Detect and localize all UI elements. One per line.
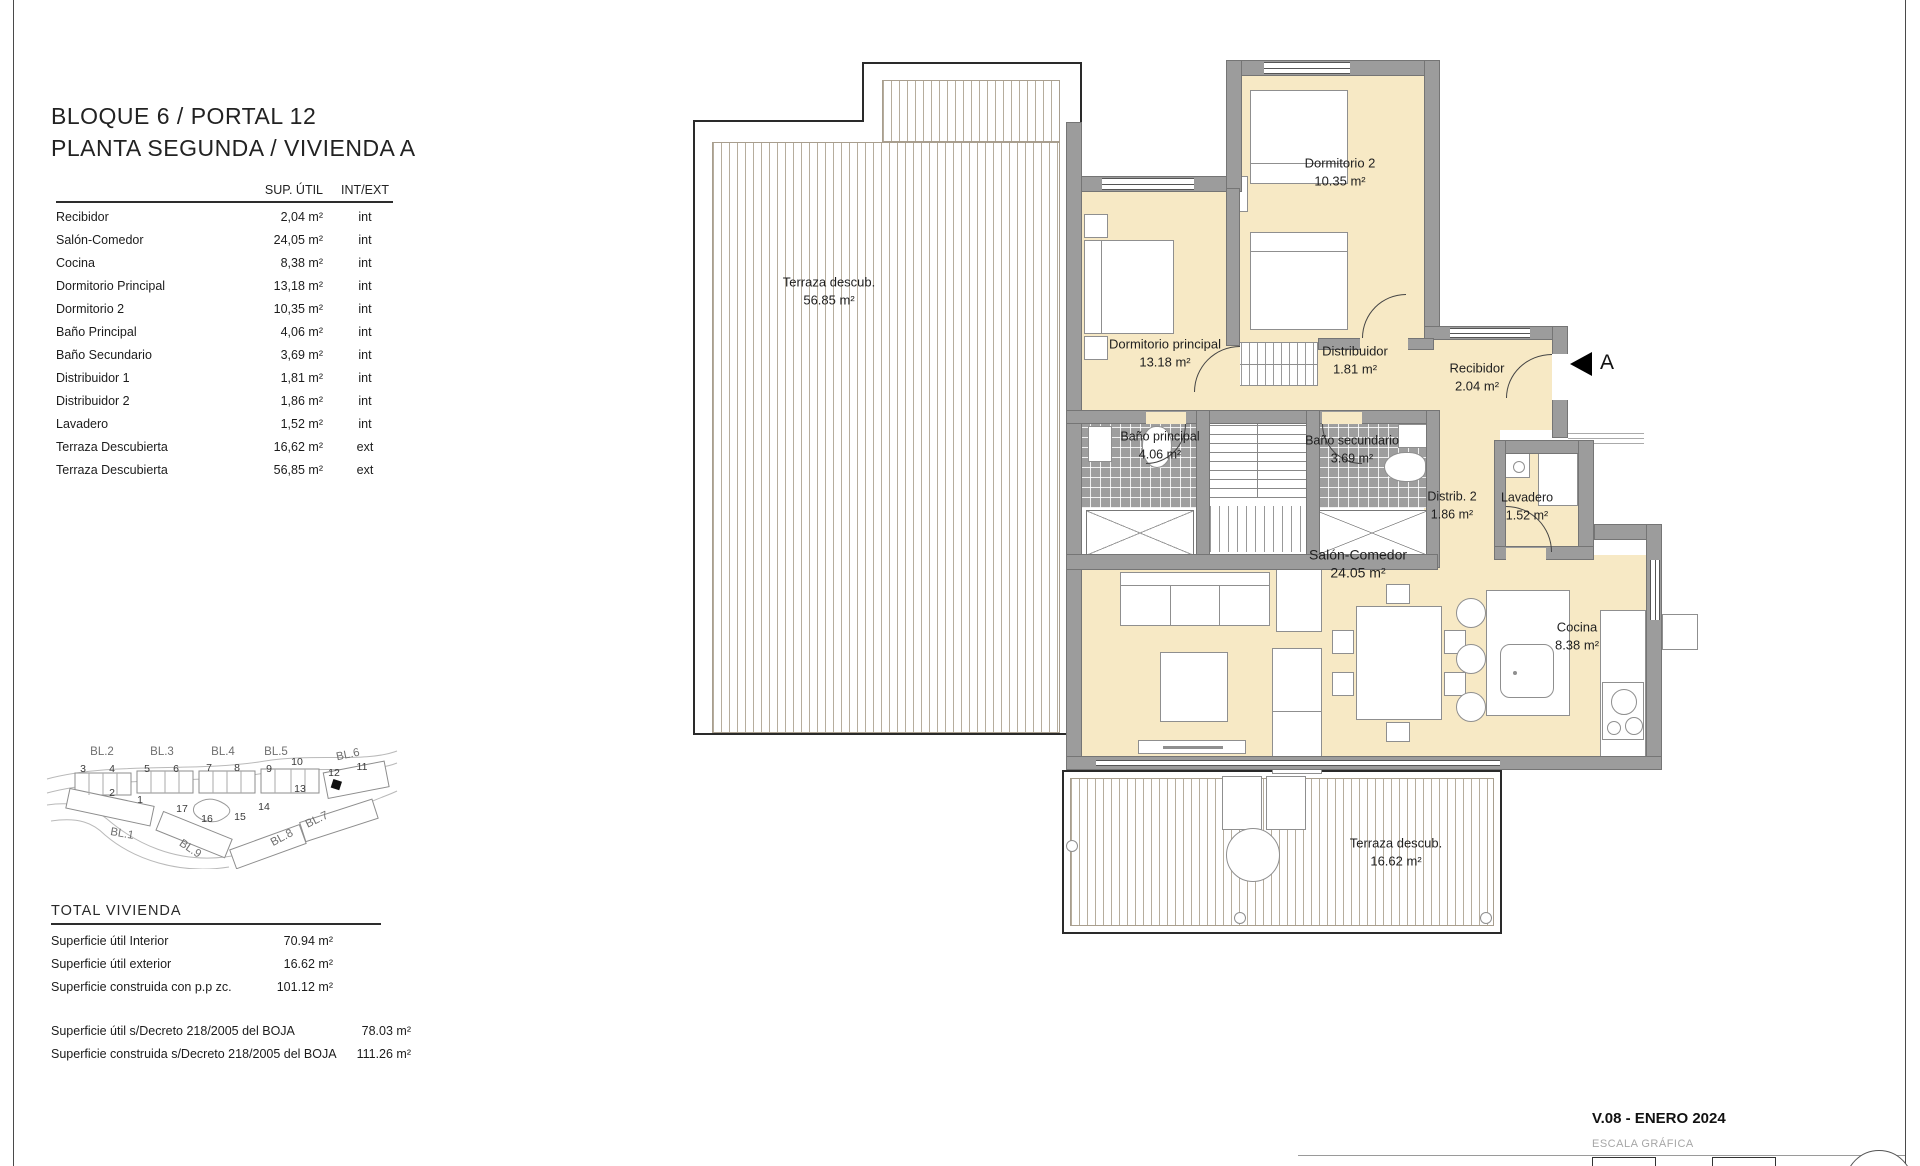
terrace-outline: [1080, 62, 1082, 124]
terrace-table: [1222, 776, 1262, 830]
bar-stool: [1456, 644, 1486, 674]
boja-table: Superficie útil s/Decreto 218/2005 del B…: [51, 1020, 411, 1066]
table-row: Dormitorio 210,35 m²int: [56, 298, 393, 321]
portal-number: 10: [291, 756, 303, 768]
portal-number: 12: [328, 767, 340, 779]
table-row: Lavadero1,52 m²int: [56, 413, 393, 436]
tv-sideboard: [1138, 740, 1246, 754]
title-line-1: BLOQUE 6 / PORTAL 12: [51, 100, 416, 132]
floor-plan-sheet: BLOQUE 6 / PORTAL 12 PLANTA SEGUNDA / VI…: [0, 0, 1920, 1166]
wall: [1424, 60, 1440, 338]
portal-number: 7: [206, 762, 212, 774]
room-label-distribuidor: Distribuidor1.81 m²: [1322, 343, 1388, 378]
portal-number: 4: [109, 763, 115, 775]
nightstand: [1084, 214, 1108, 238]
table-row: Terraza Descubierta16,62 m²ext: [56, 436, 393, 459]
totals-heading: TOTAL VIVIENDA: [51, 903, 182, 919]
ottoman: [1160, 652, 1228, 722]
block-label: BL.2: [90, 746, 114, 758]
boja-row: Superficie construida s/Decreto 218/2005…: [51, 1043, 411, 1066]
block-label: BL.5: [264, 746, 288, 758]
surfaces-table: Recibidor2,04 m²int Salón-Comedor24,05 m…: [56, 206, 393, 482]
sink: [1398, 424, 1428, 448]
table-row: Terraza Descubierta56,85 m²ext: [56, 459, 393, 482]
sink: [1088, 426, 1112, 462]
room-label-dormitorio-2: Dormitorio 210.35 m²: [1305, 155, 1376, 190]
stairwell: [1210, 418, 1306, 556]
totals-underline: [51, 923, 381, 925]
header-int-ext: INT/EXT: [337, 183, 393, 197]
title-line-2: PLANTA SEGUNDA / VIVIENDA A: [51, 132, 416, 164]
stair-treads: [1210, 420, 1306, 498]
scale-bar-segment: [1592, 1157, 1656, 1166]
dining-chair: [1332, 630, 1354, 654]
washing-machine: [1504, 452, 1530, 478]
table-row: Baño Secundario3,69 m²int: [56, 344, 393, 367]
door-opening: [1146, 412, 1186, 424]
block-label: BL.3: [150, 746, 174, 758]
drain: [1066, 840, 1078, 852]
north-arrow-circle: [1845, 1150, 1913, 1166]
room-label-lavadero: Lavadero1.52 m²: [1501, 490, 1553, 525]
graphic-scale-label: ESCALA GRÁFICA: [1592, 1138, 1694, 1150]
page-border-left: [13, 0, 14, 1166]
dining-chair: [1386, 584, 1410, 604]
table-row: Cocina8,38 m²int: [56, 252, 393, 275]
totals-table: Superficie útil Interior70.94 m² Superfi…: [51, 930, 333, 999]
portal-number: 2: [109, 787, 115, 799]
dining-chair: [1332, 672, 1354, 696]
portal-number: 13: [294, 783, 306, 795]
terrace-decking: [882, 80, 1060, 142]
site-map-drawing: [45, 743, 399, 869]
totals-row: Superficie construida con p.p zc.101.12 …: [51, 976, 333, 999]
window: [1264, 62, 1350, 74]
entry-door-opening: [1552, 354, 1568, 400]
terrace-outline: [693, 120, 864, 122]
portal-number: 6: [173, 763, 179, 775]
terrace-table: [1266, 776, 1306, 830]
table-row: Recibidor2,04 m²int: [56, 206, 393, 229]
terrace-outline: [693, 120, 695, 735]
table-row: Salón-Comedor24,05 m²int: [56, 229, 393, 252]
table-underline: [56, 201, 393, 203]
version-label: V.08 - ENERO 2024: [1592, 1110, 1726, 1127]
bar-stool: [1456, 692, 1486, 722]
section-marker-label: A: [1600, 351, 1614, 375]
room-label-bano-secundario: Baño secundario3.69 m²: [1305, 433, 1399, 468]
portal-number: 5: [144, 763, 150, 775]
scale-bar-segment: [1712, 1157, 1776, 1166]
totals-row: Superficie útil exterior16.62 m²: [51, 953, 333, 976]
room-label-distrib-2: Distrib. 21.86 m²: [1427, 489, 1476, 524]
stair-lower-treads: [1210, 506, 1306, 552]
room-label-salon-comedor: Salón-Comedor24.05 m²: [1309, 547, 1407, 582]
wall: [1578, 440, 1594, 556]
window: [1102, 178, 1194, 190]
portal-number: 11: [357, 761, 368, 773]
bed: [1084, 240, 1174, 334]
table-row: Distribuidor 21,86 m²int: [56, 390, 393, 413]
shower-tray: [1086, 510, 1194, 556]
room-label-recibidor: Recibidor2.04 m²: [1450, 360, 1505, 395]
wall: [1226, 60, 1242, 192]
dining-chair: [1386, 722, 1410, 742]
terrace-decking: [712, 142, 1060, 733]
header-sup-util: SUP. ÚTIL: [265, 183, 323, 197]
room-label-bano-principal: Baño principal4.06 m²: [1120, 429, 1199, 464]
portal-number: 15: [234, 811, 246, 823]
drain: [1234, 912, 1246, 924]
portal-number: 9: [266, 763, 272, 775]
bar-stool: [1456, 598, 1486, 628]
surfaces-table-header: SUP. ÚTIL INT/EXT: [56, 183, 393, 199]
island-sink: [1500, 644, 1554, 698]
terrace-round-table: [1226, 828, 1280, 882]
room-label-terraza-grande: Terraza descub.56.85 m²: [783, 274, 876, 309]
glass-sliding-door: [1096, 760, 1500, 766]
sofa: [1120, 572, 1270, 626]
portal-number: 8: [234, 762, 240, 774]
window: [1650, 560, 1660, 620]
wall: [1066, 410, 1440, 424]
page-title: BLOQUE 6 / PORTAL 12 PLANTA SEGUNDA / VI…: [51, 100, 416, 164]
page-border-right: [1905, 0, 1906, 1166]
portal-number: 14: [258, 801, 270, 813]
window: [1450, 328, 1530, 338]
boja-row: Superficie útil s/Decreto 218/2005 del B…: [51, 1020, 411, 1043]
totals-row: Superficie útil Interior70.94 m²: [51, 930, 333, 953]
wardrobe: [1232, 342, 1318, 386]
table-row: Baño Principal4,06 m²int: [56, 321, 393, 344]
cooktop: [1602, 682, 1644, 740]
portal-number: 3: [80, 763, 86, 775]
terrace-outline: [862, 62, 864, 122]
section-marker-icon: [1570, 352, 1592, 376]
drain: [1480, 912, 1492, 924]
portal-number: 16: [201, 813, 213, 825]
block-label: BL.4: [211, 746, 235, 758]
bed: [1250, 232, 1348, 330]
terrace-outline: [693, 733, 1082, 735]
portal-number: 17: [176, 803, 188, 815]
door-opening: [1322, 412, 1362, 424]
wall: [1066, 122, 1082, 770]
stair-divider: [1257, 420, 1258, 498]
table-row: Dormitorio Principal13,18 m²int: [56, 275, 393, 298]
wall: [1226, 188, 1240, 346]
site-location-map: BL.2 BL.3 BL.4 BL.5 BL.6 BL.1 BL.9 BL.8 …: [45, 743, 399, 869]
room-label-cocina: Cocina8.38 m²: [1555, 619, 1599, 654]
dining-chair: [1444, 672, 1466, 696]
room-label-terraza-peq: Terraza descub.16.62 m²: [1350, 835, 1443, 870]
title-block-line: [1298, 1155, 1905, 1156]
nightstand: [1084, 336, 1108, 360]
portal-number: 1: [137, 794, 143, 806]
terrace-outline: [862, 62, 1082, 64]
room-label-dormitorio-principal: Dormitorio principal13.18 m²: [1109, 336, 1221, 371]
dining-table: [1356, 606, 1442, 720]
table-row: Distribuidor 11,81 m²int: [56, 367, 393, 390]
ac-unit: [1662, 614, 1698, 650]
